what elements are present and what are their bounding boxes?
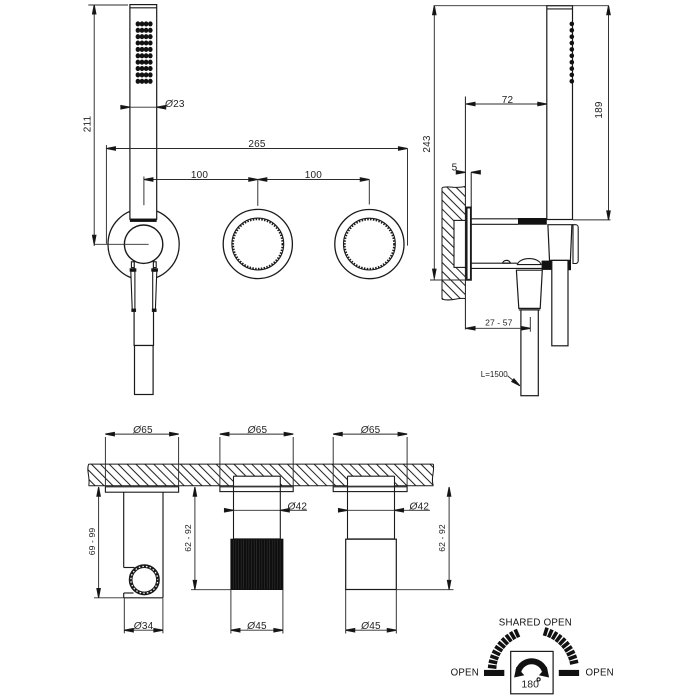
- svg-text:Ø65: Ø65: [360, 425, 381, 436]
- svg-text:27 - 57: 27 - 57: [485, 318, 513, 328]
- svg-text:265: 265: [248, 139, 266, 150]
- svg-text:100: 100: [191, 170, 209, 181]
- svg-text:Ø45: Ø45: [246, 621, 267, 632]
- svg-text:211: 211: [83, 115, 94, 132]
- svg-text:69 - 99: 69 - 99: [87, 528, 97, 556]
- svg-text:L=1500: L=1500: [481, 370, 508, 379]
- svg-text:OPEN: OPEN: [451, 667, 479, 678]
- svg-text:Ø65: Ø65: [132, 425, 153, 436]
- svg-text:Ø42: Ø42: [287, 501, 308, 512]
- svg-text:180: 180: [521, 678, 539, 690]
- svg-text:OPEN: OPEN: [585, 667, 613, 678]
- svg-text:Ø42: Ø42: [409, 501, 430, 512]
- svg-text:62 - 92: 62 - 92: [437, 524, 447, 552]
- svg-text:Ø45: Ø45: [360, 621, 381, 632]
- svg-text:243: 243: [422, 135, 433, 153]
- svg-text:72: 72: [502, 95, 514, 106]
- svg-text:Ø65: Ø65: [247, 425, 268, 436]
- svg-text:SHARED OPEN: SHARED OPEN: [499, 618, 572, 629]
- svg-text:189: 189: [594, 101, 605, 119]
- svg-text:5: 5: [452, 163, 458, 174]
- svg-text:100: 100: [305, 170, 323, 181]
- svg-text:Ø34: Ø34: [133, 621, 154, 632]
- svg-text:Ø23: Ø23: [164, 99, 185, 110]
- svg-text:62 - 92: 62 - 92: [183, 524, 193, 552]
